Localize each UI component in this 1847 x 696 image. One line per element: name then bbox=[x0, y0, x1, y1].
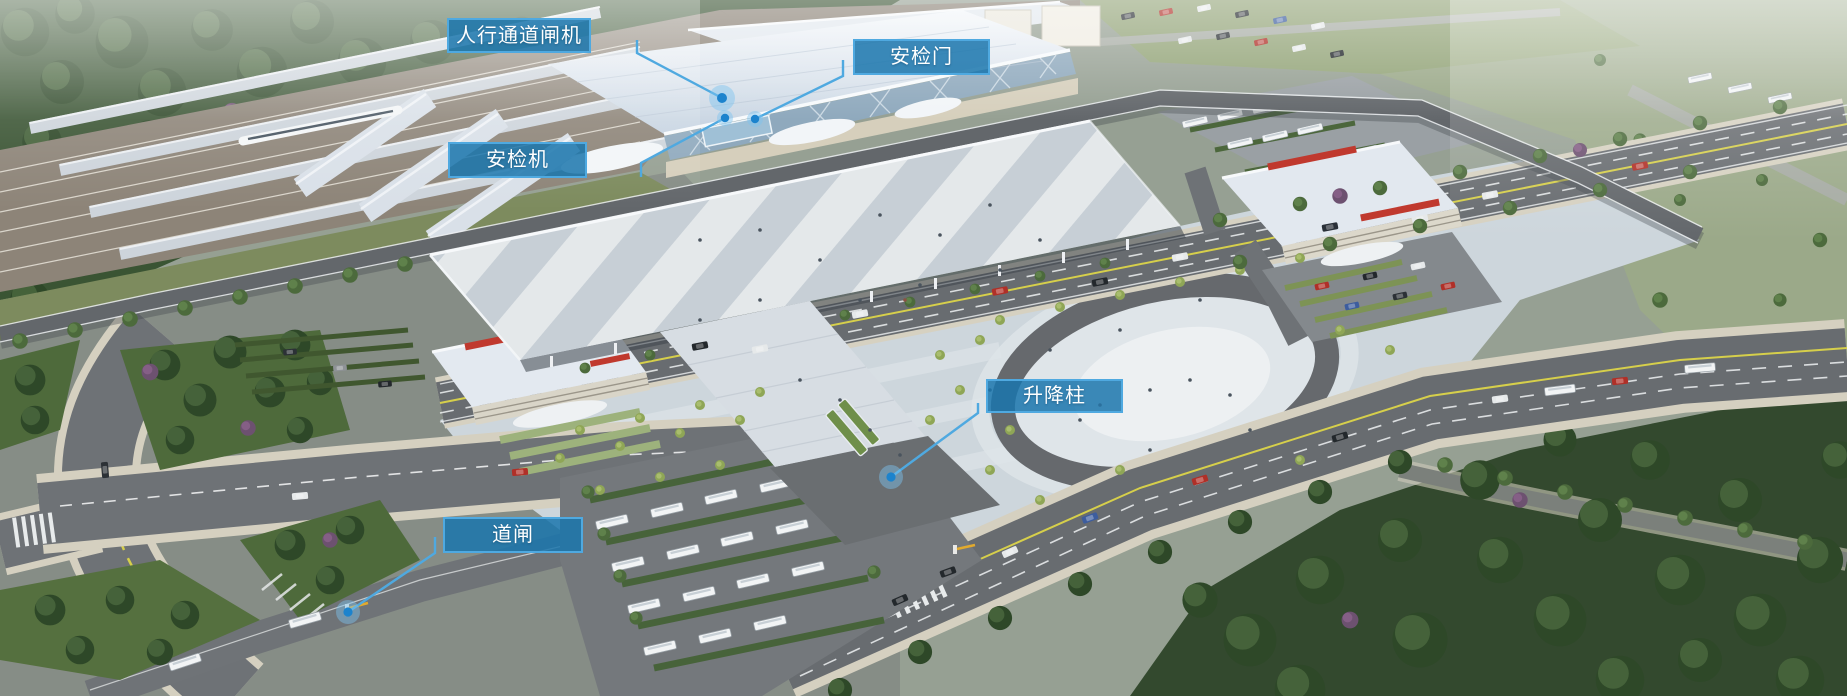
callout-label-text: 道闸 bbox=[492, 525, 534, 545]
station-aerial-illustration bbox=[0, 0, 1847, 696]
callout-label-text: 人行通道闸机 bbox=[456, 26, 582, 46]
callout-label-text: 安检机 bbox=[486, 150, 549, 170]
callout-dot-barrier-gate bbox=[336, 600, 360, 624]
callout-label-security-scanner[interactable]: 安检机 bbox=[448, 142, 587, 178]
callout-label-text: 升降柱 bbox=[1023, 386, 1086, 406]
callout-dot-pedestrian-gate bbox=[709, 85, 735, 111]
station-aerial-overview: 人行通道闸机 安检门 安检机 升降柱 道闸 bbox=[0, 0, 1847, 696]
callout-label-pedestrian-gate[interactable]: 人行通道闸机 bbox=[447, 18, 591, 53]
callout-label-bollard[interactable]: 升降柱 bbox=[986, 379, 1123, 413]
callout-dot-security-scanner bbox=[717, 110, 733, 126]
callout-label-security-door[interactable]: 安检门 bbox=[853, 39, 990, 75]
callout-dot-security-door bbox=[747, 111, 763, 127]
callout-dot-bollard bbox=[879, 465, 903, 489]
callout-label-text: 安检门 bbox=[890, 47, 953, 67]
callout-label-barrier-gate[interactable]: 道闸 bbox=[443, 517, 583, 553]
